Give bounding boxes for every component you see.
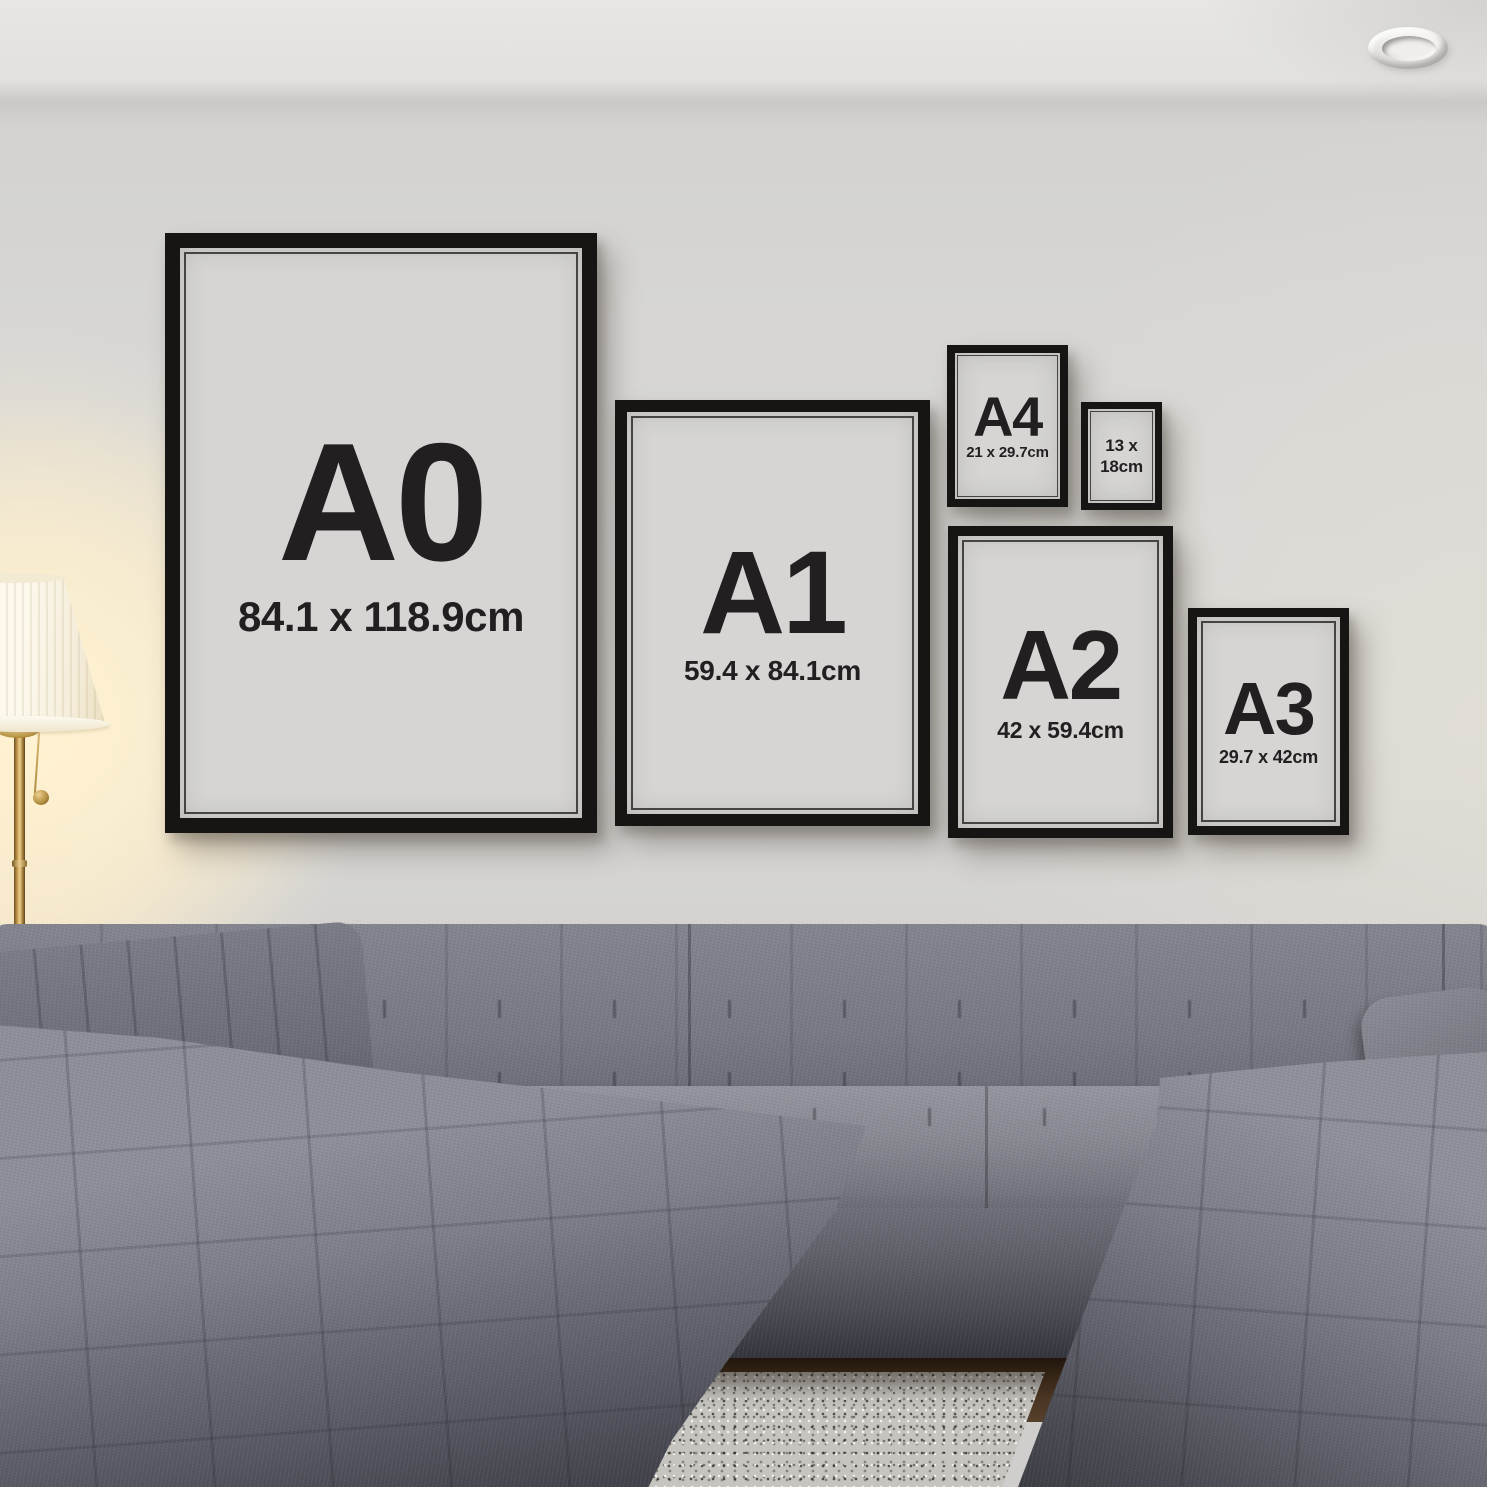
frame-a3-label: A3	[1223, 675, 1314, 743]
recessed-ceiling-light	[1368, 27, 1448, 69]
frame-13x18-dimensions: 13 x 18cm	[1100, 435, 1143, 478]
frame-a4-dimensions: 21 x 29.7cm	[966, 444, 1049, 461]
frame-a1-dimensions: 59.4 x 84.1cm	[684, 655, 861, 687]
frame-a3-dimensions: 29.7 x 42cm	[1219, 747, 1318, 768]
frame-a2-mat: A2 42 x 59.4cm	[958, 536, 1163, 828]
frame-a0-label: A0	[278, 425, 484, 580]
frame-a4: A4 21 x 29.7cm	[947, 345, 1068, 507]
frame-a2-label: A2	[1000, 620, 1120, 710]
frame-a2: A2 42 x 59.4cm	[948, 526, 1173, 838]
frame-a1-mat: A1 59.4 x 84.1cm	[627, 412, 918, 814]
frame-13x18: 13 x 18cm	[1081, 402, 1162, 510]
floor-lamp-pull-chain-ball	[33, 790, 49, 805]
frame-a3-mat: A3 29.7 x 42cm	[1197, 617, 1340, 826]
frame-13x18-mat: 13 x 18cm	[1088, 409, 1155, 503]
frame-13x18-dimensions-line1: 13 x	[1105, 436, 1137, 455]
frame-a0-mat: A0 84.1 x 118.9cm	[180, 248, 582, 818]
frame-a4-mat: A4 21 x 29.7cm	[955, 353, 1060, 499]
frame-a3: A3 29.7 x 42cm	[1188, 608, 1349, 835]
sofa-backrest-tufting-row	[330, 1000, 1480, 1018]
frame-a0-dimensions: 84.1 x 118.9cm	[238, 593, 524, 641]
frame-a4-label: A4	[973, 391, 1042, 443]
frame-13x18-dimensions-line2: 18cm	[1100, 457, 1143, 476]
frame-a1-label: A1	[700, 539, 845, 648]
living-room-scene: A0 84.1 x 118.9cm A1 59.4 x 84.1cm A4 21…	[0, 0, 1487, 1487]
floor-lamp-pole-joint	[12, 860, 27, 867]
frame-a0: A0 84.1 x 118.9cm	[165, 233, 597, 833]
frame-a1: A1 59.4 x 84.1cm	[615, 400, 930, 826]
frame-a2-dimensions: 42 x 59.4cm	[997, 717, 1124, 744]
